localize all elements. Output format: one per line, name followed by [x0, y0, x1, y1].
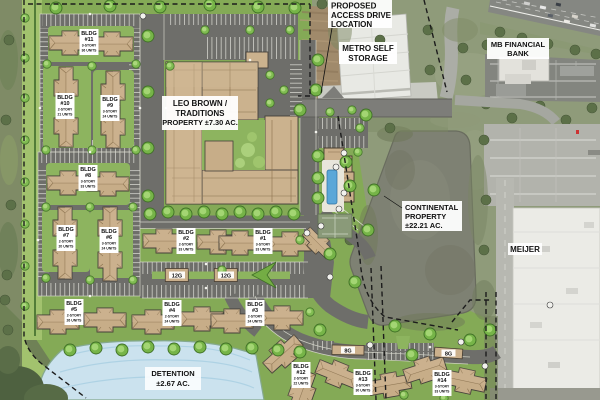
svg-text:CONTINENTAL: CONTINENTAL [405, 203, 459, 212]
svg-text:12G: 12G [221, 274, 231, 280]
svg-text:#9: #9 [107, 103, 113, 109]
svg-text:21 UNITS: 21 UNITS [58, 113, 74, 117]
svg-text:24 UNITS: 24 UNITS [248, 320, 264, 324]
svg-text:#1: #1 [260, 236, 266, 242]
svg-text:MB FINANCIAL: MB FINANCIAL [491, 40, 546, 49]
svg-text:PROPERTY ±7.30 AC.: PROPERTY ±7.30 AC. [162, 118, 238, 127]
svg-text:2-STORY: 2-STORY [59, 240, 74, 244]
svg-text:3-STORY: 3-STORY [435, 385, 450, 389]
svg-text:LEO BROWN /: LEO BROWN / [173, 99, 228, 108]
svg-text:#14: #14 [437, 378, 447, 384]
svg-text:#2: #2 [183, 236, 189, 242]
svg-text:33 UNITS: 33 UNITS [435, 390, 451, 394]
svg-text:3-STORY: 3-STORY [103, 110, 118, 114]
svg-text:33 UNITS: 33 UNITS [81, 185, 97, 189]
svg-text:#12: #12 [296, 370, 305, 376]
svg-text:#10: #10 [60, 101, 69, 107]
svg-text:2-STORY: 2-STORY [248, 315, 263, 319]
svg-text:26 UNITS: 26 UNITS [67, 319, 83, 323]
svg-text:STORAGE: STORAGE [348, 54, 388, 63]
svg-text:#8: #8 [85, 173, 91, 179]
svg-text:TRADITIONS: TRADITIONS [176, 109, 226, 118]
svg-text:#7: #7 [63, 233, 69, 239]
svg-text:3-STORY: 3-STORY [356, 384, 371, 388]
svg-text:#4: #4 [169, 308, 176, 314]
svg-text:#5: #5 [71, 307, 77, 313]
svg-text:±2.67 AC.: ±2.67 AC. [156, 379, 189, 388]
svg-text:PROPOSED: PROPOSED [331, 2, 377, 11]
svg-text:33 UNITS: 33 UNITS [179, 248, 195, 252]
svg-text:±22.21 AC.: ±22.21 AC. [405, 221, 443, 230]
svg-text:2-STORY: 2-STORY [294, 377, 309, 381]
svg-text:3-STORY: 3-STORY [256, 243, 271, 247]
svg-text:ACCESS DRIVE: ACCESS DRIVE [331, 11, 392, 20]
svg-text:22 UNITS: 22 UNITS [294, 382, 310, 386]
svg-text:33 UNITS: 33 UNITS [256, 248, 272, 252]
svg-text:12G: 12G [172, 274, 182, 280]
svg-text:LOCATION: LOCATION [331, 20, 372, 29]
svg-text:30 UNITS: 30 UNITS [356, 389, 372, 393]
svg-text:36 UNITS: 36 UNITS [82, 49, 98, 53]
svg-text:24 UNITS: 24 UNITS [103, 115, 119, 119]
svg-text:2-STORY: 2-STORY [165, 315, 180, 319]
svg-text:3-STORY: 3-STORY [82, 44, 97, 48]
svg-text:PROPERTY: PROPERTY [405, 212, 446, 221]
svg-text:2-STORY: 2-STORY [179, 243, 194, 247]
svg-text:BANK: BANK [507, 49, 529, 58]
svg-text:#6: #6 [106, 235, 112, 241]
svg-text:DETENTION: DETENTION [151, 369, 194, 378]
svg-text:8G: 8G [445, 352, 452, 358]
svg-text:METRO SELF: METRO SELF [342, 44, 394, 53]
svg-text:8G: 8G [344, 349, 351, 355]
svg-text:2-STORY: 2-STORY [67, 314, 82, 318]
svg-text:#3: #3 [252, 308, 258, 314]
svg-text:2-STORY: 2-STORY [58, 108, 73, 112]
svg-text:#11: #11 [85, 37, 94, 43]
svg-text:20 UNITS: 20 UNITS [59, 245, 75, 249]
svg-text:3-STORY: 3-STORY [102, 242, 117, 246]
svg-text:24 UNITS: 24 UNITS [165, 320, 181, 324]
svg-text:24 UNITS: 24 UNITS [102, 247, 118, 251]
svg-text:MEIJER: MEIJER [510, 245, 540, 254]
svg-text:3-STORY: 3-STORY [81, 180, 96, 184]
svg-text:#13: #13 [358, 377, 367, 383]
